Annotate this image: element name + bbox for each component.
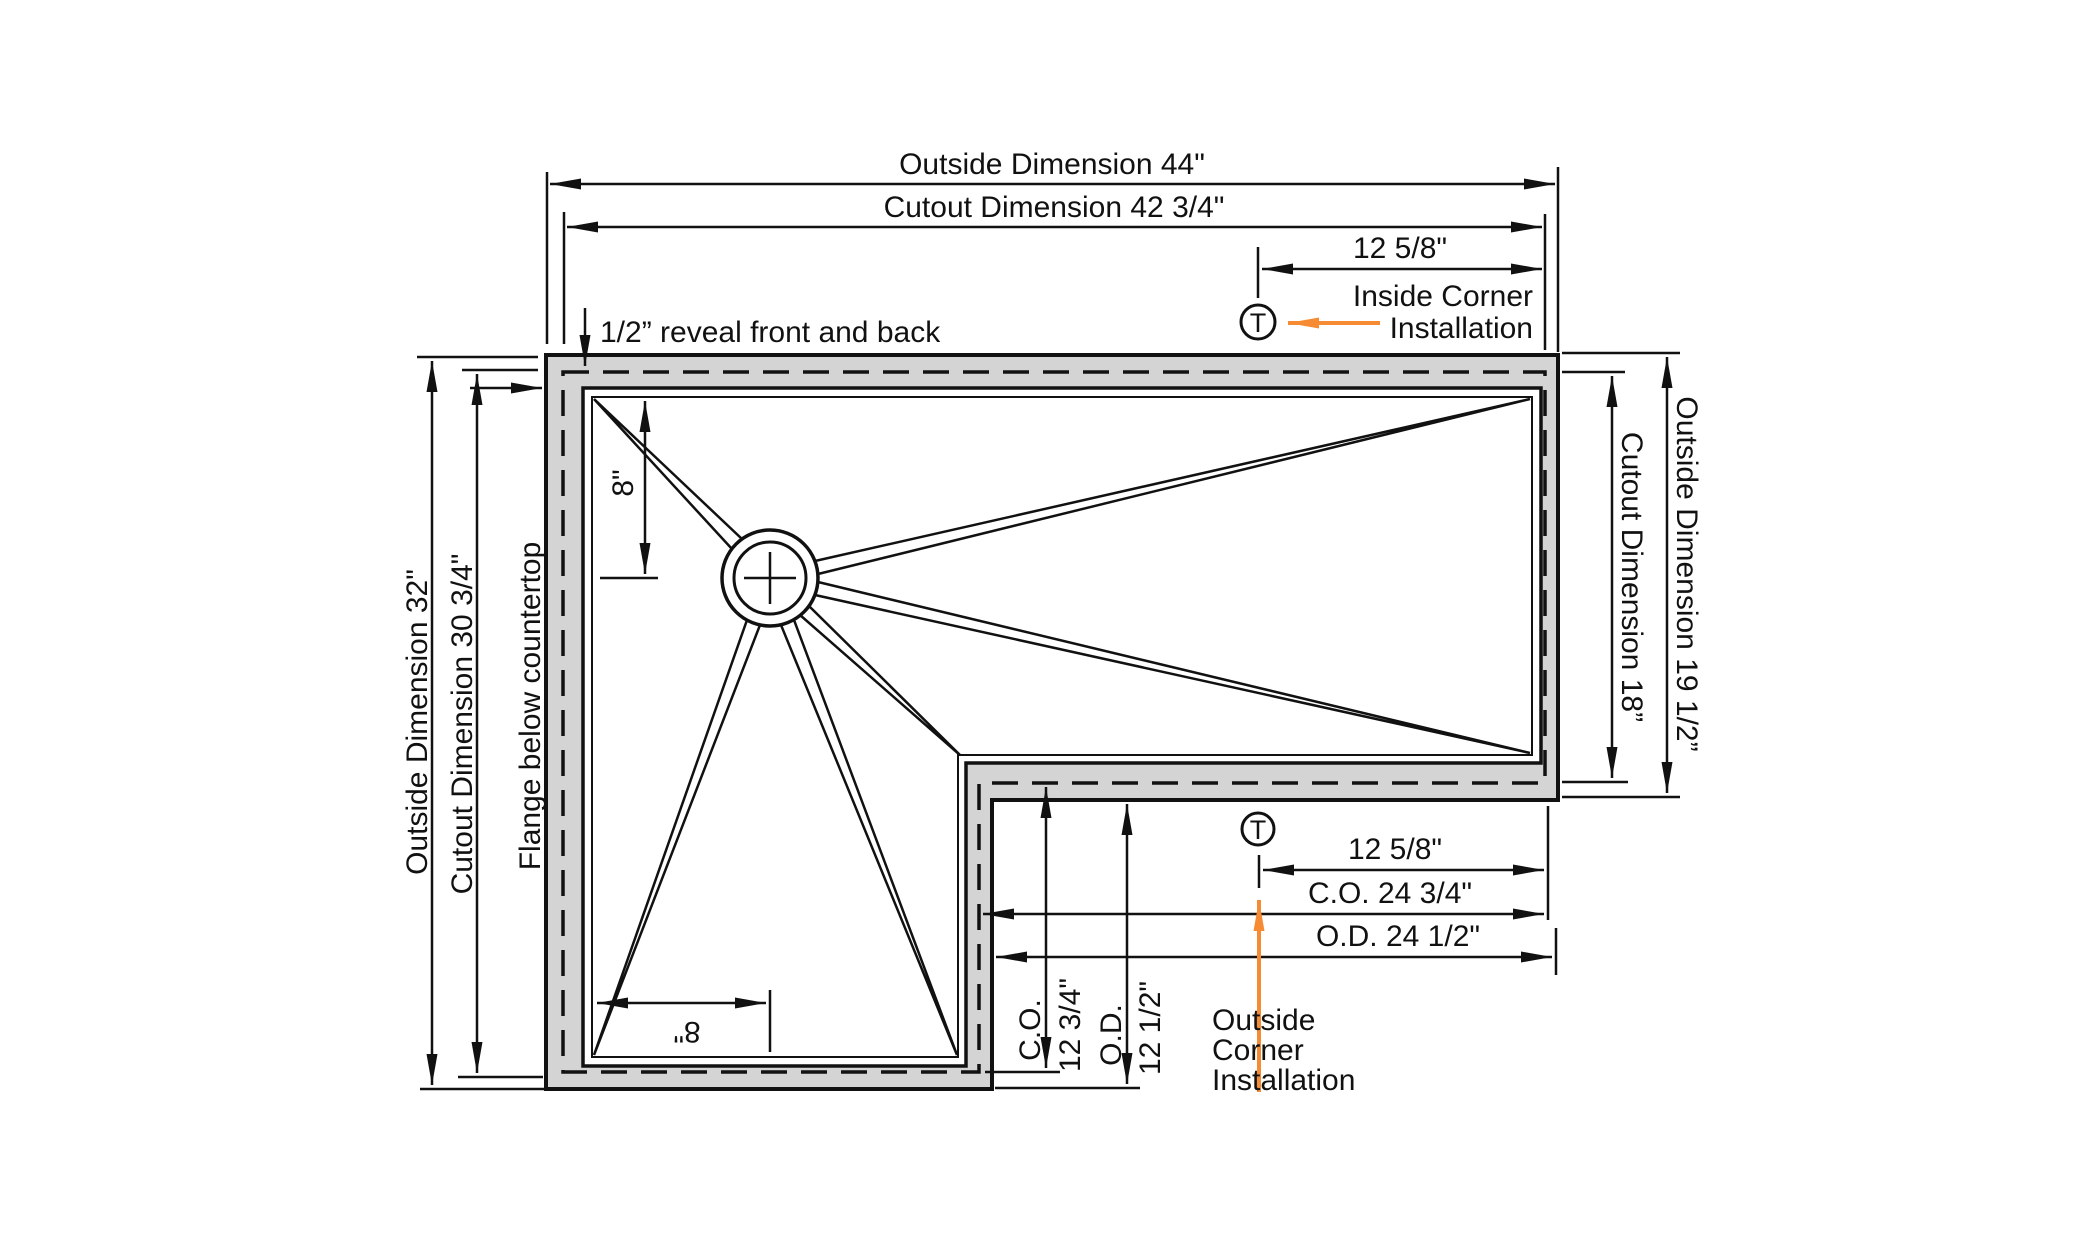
cutout-dimension-18-label: Cutout Dimension 18” (1615, 432, 1648, 722)
top-dimensions: Outside Dimension 44" Cutout Dimension 4… (547, 148, 1558, 366)
bottom-dimensions: 12 5/8" C.O. 24 3/4" O.D. 24 1/2" C.O. 1… (983, 787, 1556, 1097)
vertical-cutout-label: C.O. (1014, 999, 1047, 1061)
top-1258-label: 12 5/8" (1353, 232, 1447, 265)
outside-corner-label-line2: Corner (1212, 1034, 1304, 1067)
inside-corner-t-marker: T (1241, 305, 1275, 339)
outside-dimension-44-label: Outside Dimension 44" (899, 148, 1205, 181)
drain-offset-top-label: 8" (607, 469, 640, 496)
reveal-note-label: 1/2” reveal front and back (600, 316, 941, 349)
outside-2412-label: O.D. 24 1/2" (1316, 920, 1480, 953)
inside-corner-label-line1: Inside Corner (1353, 280, 1533, 313)
bowl-rim-outer (583, 388, 1541, 1066)
outside-corner-label-line3: Installation (1212, 1064, 1355, 1097)
t-marker-letter-bottom: T (1250, 815, 1267, 845)
cutout-dimension-3034-label: Cutout Dimension 30 3/4" (446, 554, 479, 895)
vertical-cutout-value: 12 3/4" (1054, 978, 1087, 1072)
outside-corner-label-line1: Outside (1212, 1004, 1315, 1037)
inside-corner-label-line2: Installation (1390, 312, 1533, 345)
diagram-canvas: Outside Dimension 44" Cutout Dimension 4… (0, 0, 2100, 1246)
vertical-outside-label: O.D. (1095, 1004, 1128, 1066)
sink-body (546, 355, 1558, 1089)
outside-corner-t-marker: T (1242, 813, 1274, 845)
left-dimensions: Outside Dimension 32" Cutout Dimension 3… (401, 357, 547, 1089)
cutout-dimension-4234-label: Cutout Dimension 42 3/4" (884, 191, 1225, 224)
right-dimensions: Cutout Dimension 18” Outside Dimension 1… (1562, 353, 1703, 797)
sink-dimension-diagram: Outside Dimension 44" Cutout Dimension 4… (0, 0, 2100, 1246)
outside-dimension-32-label: Outside Dimension 32" (401, 569, 434, 875)
drain (722, 530, 818, 626)
outside-dimension-1912-label: Outside Dimension 19 1/2” (1670, 396, 1703, 751)
flange-note-label: Flange below countertop (514, 542, 547, 871)
t-marker-letter-top: T (1250, 308, 1267, 338)
drain-offset-left-label: 8" (673, 1015, 700, 1048)
bottom-1258-label: 12 5/8" (1348, 833, 1442, 866)
cutout-2434-label: C.O. 24 3/4" (1308, 877, 1472, 910)
vertical-outside-value: 12 1/2" (1134, 981, 1167, 1075)
